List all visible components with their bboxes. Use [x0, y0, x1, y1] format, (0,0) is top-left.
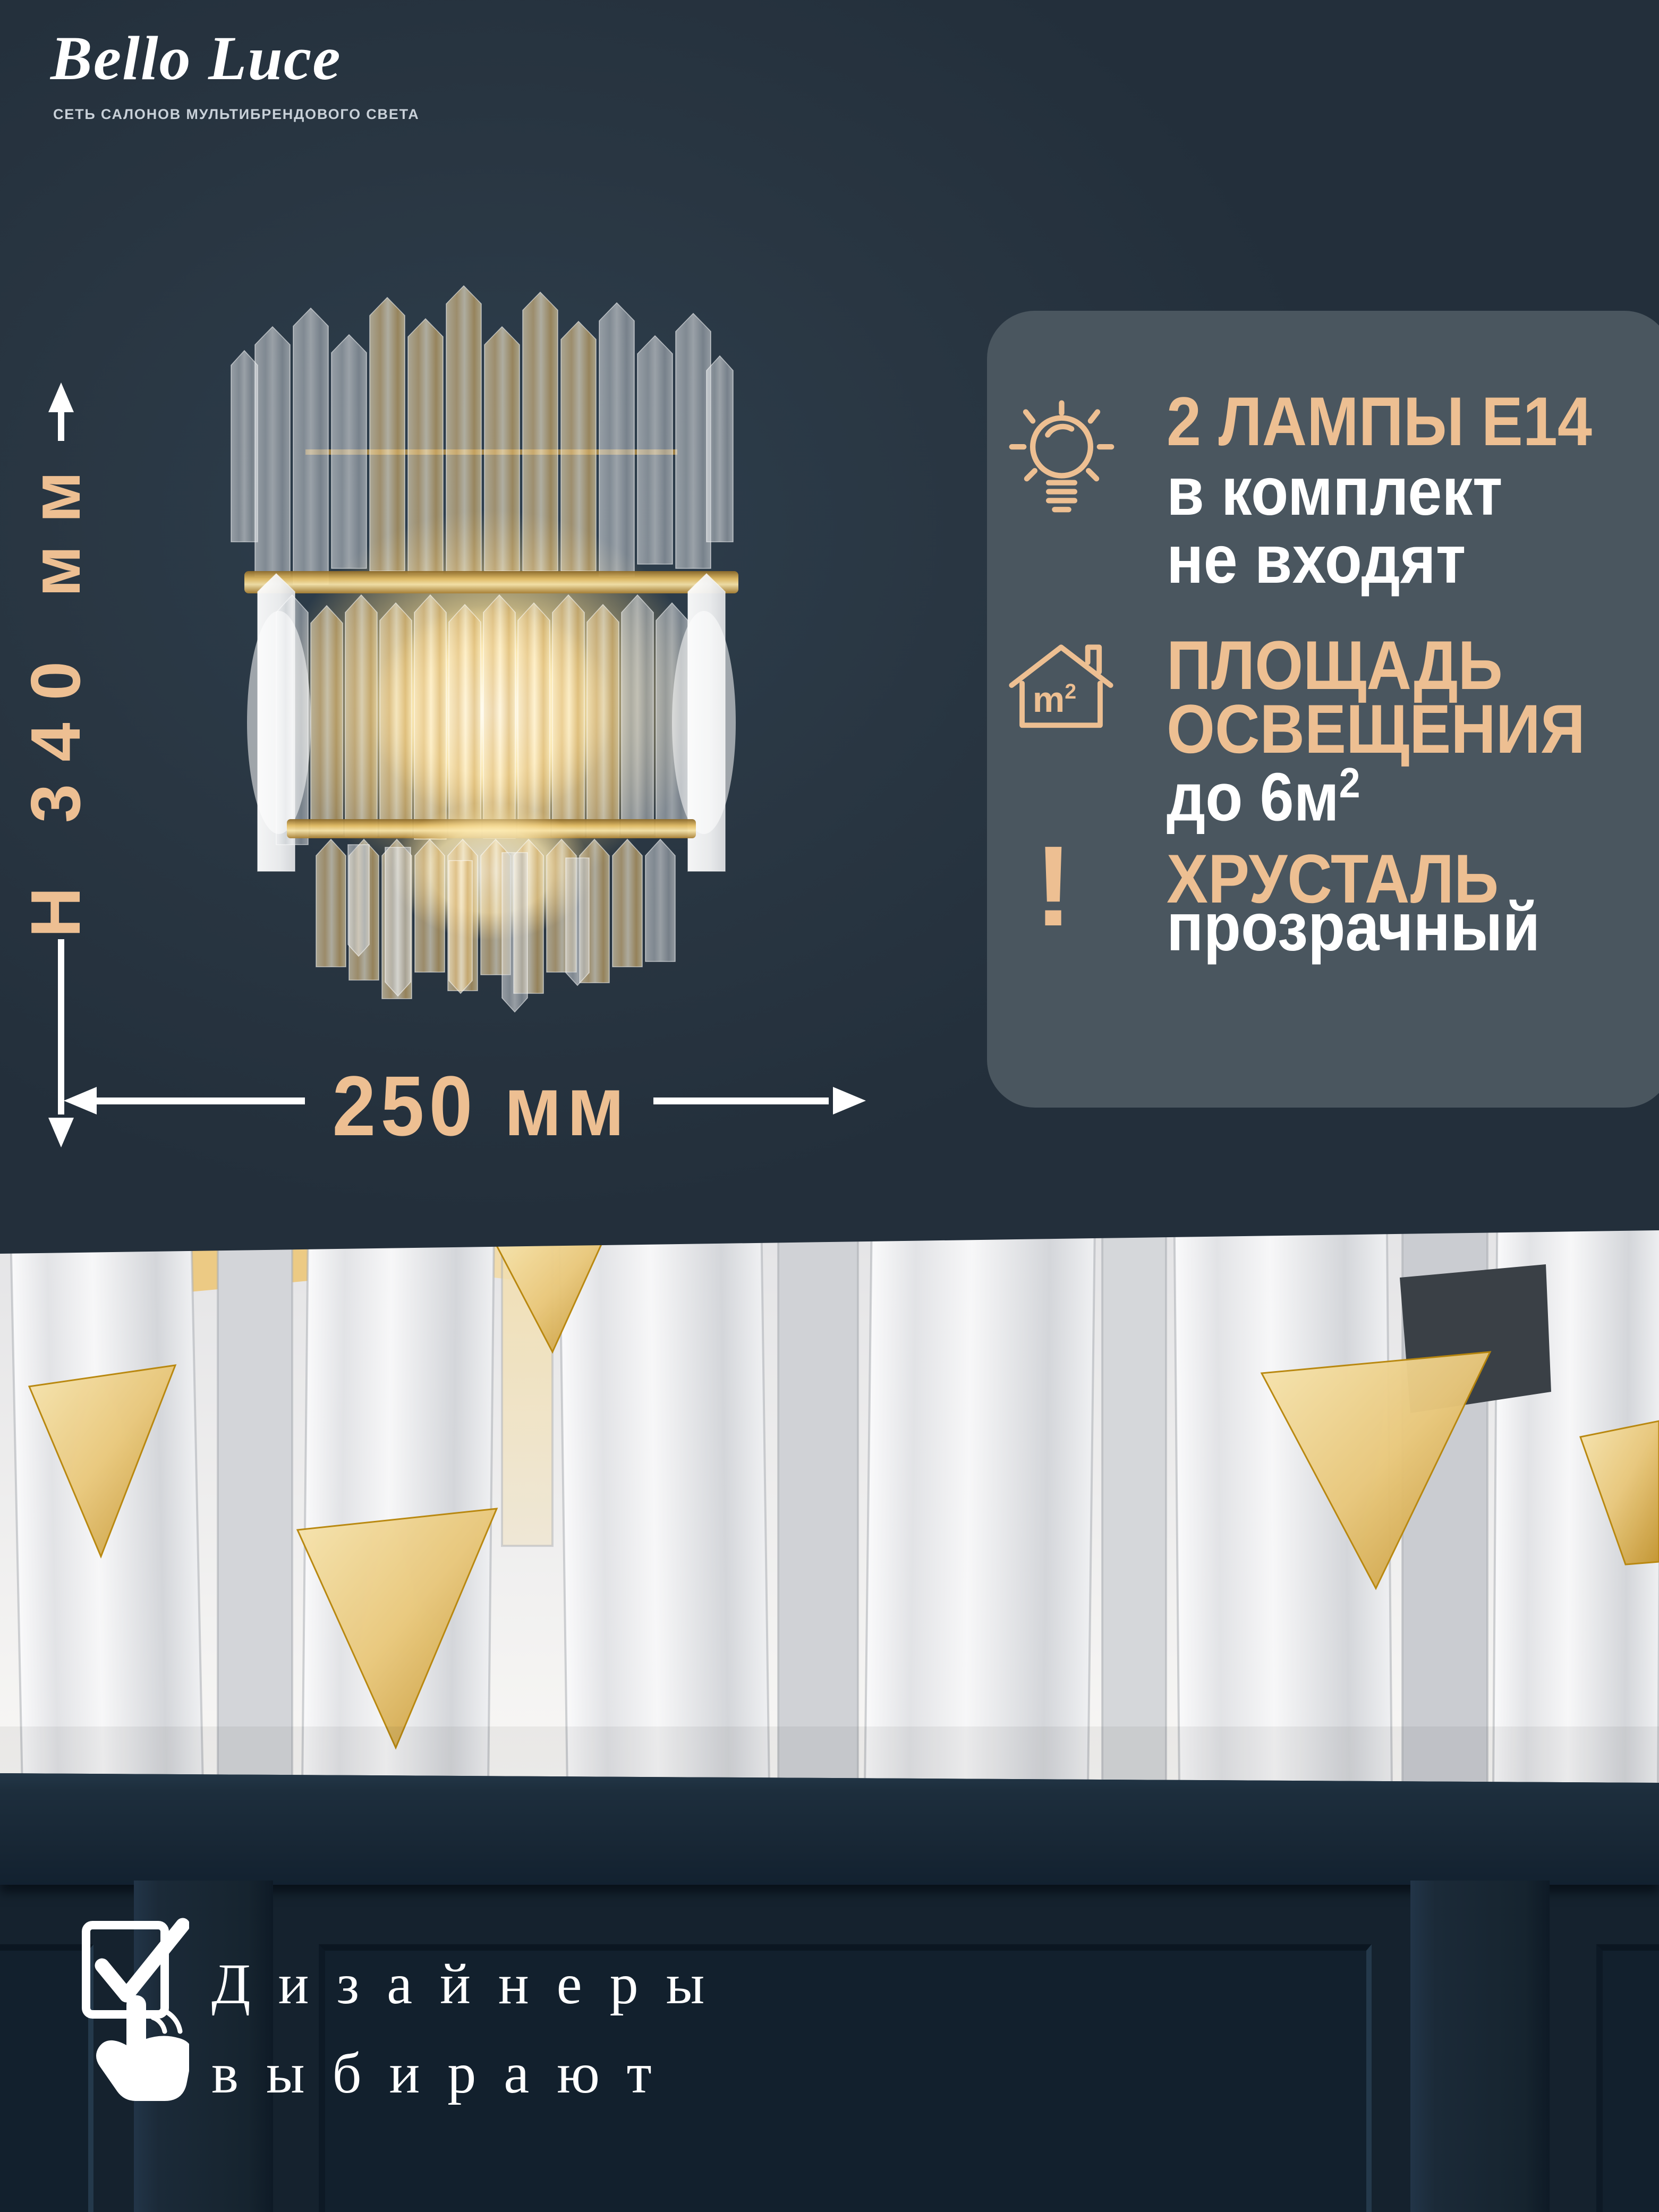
- svg-text:m2: m2: [1033, 679, 1076, 720]
- width-dimension-label: 250 мм: [329, 1057, 632, 1155]
- wall-stile-right: [1410, 1881, 1550, 2212]
- crystal-closeup-photo: [0, 1216, 1659, 1785]
- crystal-closeup-graphic: [0, 1216, 1659, 1785]
- spec-area-title2: ОСВЕЩЕНИЯ: [1167, 694, 1585, 763]
- spec-crystal-value: прозрачный: [1167, 894, 1540, 962]
- product-banner: Bello Luce СЕТЬ САЛОНОВ МУЛЬТИБРЕНДОВОГО…: [0, 0, 1659, 2212]
- wall-paneling-photo: Дизайнеры выбирают: [0, 1769, 1659, 2212]
- spec-lamps-line2: не входят: [1167, 526, 1466, 594]
- light-bulb-icon: [1002, 395, 1121, 525]
- designers-text-line1: Дизайнеры: [211, 1956, 732, 2013]
- spec-lamps-title: 2 ЛАМПЫ E14: [1167, 387, 1592, 456]
- product-photo-wall-sconce: [226, 276, 757, 1020]
- house-icon-m-label: m: [1033, 679, 1065, 720]
- brand-logo: Bello Luce: [50, 22, 342, 95]
- height-dimension-label: H 340 мм: [16, 444, 96, 943]
- wall-panel-right: [1596, 1944, 1659, 2212]
- exclamation-icon: !: [1030, 829, 1077, 951]
- spec-lamps-line1: в комплект: [1167, 458, 1502, 526]
- hero-section: Bello Luce СЕТЬ САЛОНОВ МУЛЬТИБРЕНДОВОГО…: [0, 0, 1659, 1255]
- brand-tagline: СЕТЬ САЛОНОВ МУЛЬТИБРЕНДОВОГО СВЕТА: [53, 106, 420, 123]
- spec-area-title1: ПЛОЩАДЬ: [1167, 631, 1503, 700]
- specs-panel: 2 ЛАМПЫ E14 в комплект не входят m2 ПЛОЩ…: [987, 311, 1659, 1108]
- house-m2-icon: m2: [1004, 637, 1118, 733]
- wall-top-rail: [0, 1769, 1659, 1885]
- designers-text-line2: выбирают: [211, 2045, 679, 2103]
- checkbox-hand-icon: [78, 1917, 189, 2121]
- spec-area-value: до 6м2: [1167, 762, 1360, 832]
